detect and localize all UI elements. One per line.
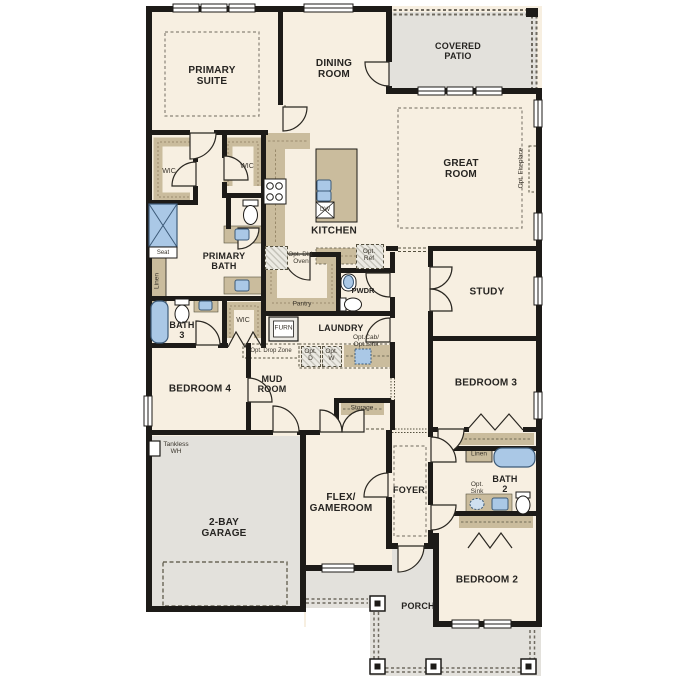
tub-bath2 <box>494 448 535 467</box>
toilet-pwdr <box>340 298 362 311</box>
sink-primary-2 <box>235 280 249 291</box>
window <box>476 87 502 95</box>
window <box>452 620 479 628</box>
tankless-water-heater <box>149 441 160 456</box>
window <box>534 100 542 127</box>
toilet-bath2 <box>516 492 530 514</box>
opt-washer-box <box>322 346 342 367</box>
floor-plan-drawing <box>0 0 687 687</box>
opt-double-oven-box <box>265 246 288 270</box>
tub-bath3 <box>151 301 168 343</box>
porch-post <box>426 659 441 674</box>
window <box>534 213 542 240</box>
porch-post <box>370 596 385 611</box>
window <box>201 4 227 12</box>
window <box>229 4 255 12</box>
toilet-bath3 <box>175 299 189 323</box>
range <box>264 179 286 204</box>
window <box>484 620 511 628</box>
window <box>322 564 354 572</box>
window <box>144 396 152 426</box>
furnace <box>269 317 298 341</box>
patio-column <box>526 8 538 17</box>
window <box>304 4 353 12</box>
floor-plan: PRIMARY SUITE DINING ROOM COVERED PATIO … <box>0 0 687 687</box>
sink-primary-1 <box>235 229 249 240</box>
opt-sink-bath2 <box>470 499 484 510</box>
porch-post <box>521 659 536 674</box>
opt-ref-box <box>356 244 384 269</box>
window <box>173 4 199 12</box>
pwdr-sink <box>341 274 356 291</box>
opt-dryer-box <box>301 346 321 367</box>
laundry-sink <box>355 349 371 364</box>
window <box>534 277 542 305</box>
porch-post <box>370 659 385 674</box>
island-sink <box>317 180 331 201</box>
sink-bath2 <box>492 498 508 510</box>
shower-seat <box>149 247 177 258</box>
window <box>534 392 542 419</box>
covered-patio-slab <box>388 12 537 90</box>
sink-bath3 <box>199 301 212 310</box>
window <box>418 87 445 95</box>
toilet-primary <box>243 200 258 225</box>
dishwasher <box>316 202 334 218</box>
window <box>447 87 473 95</box>
garage-slab <box>152 436 300 606</box>
